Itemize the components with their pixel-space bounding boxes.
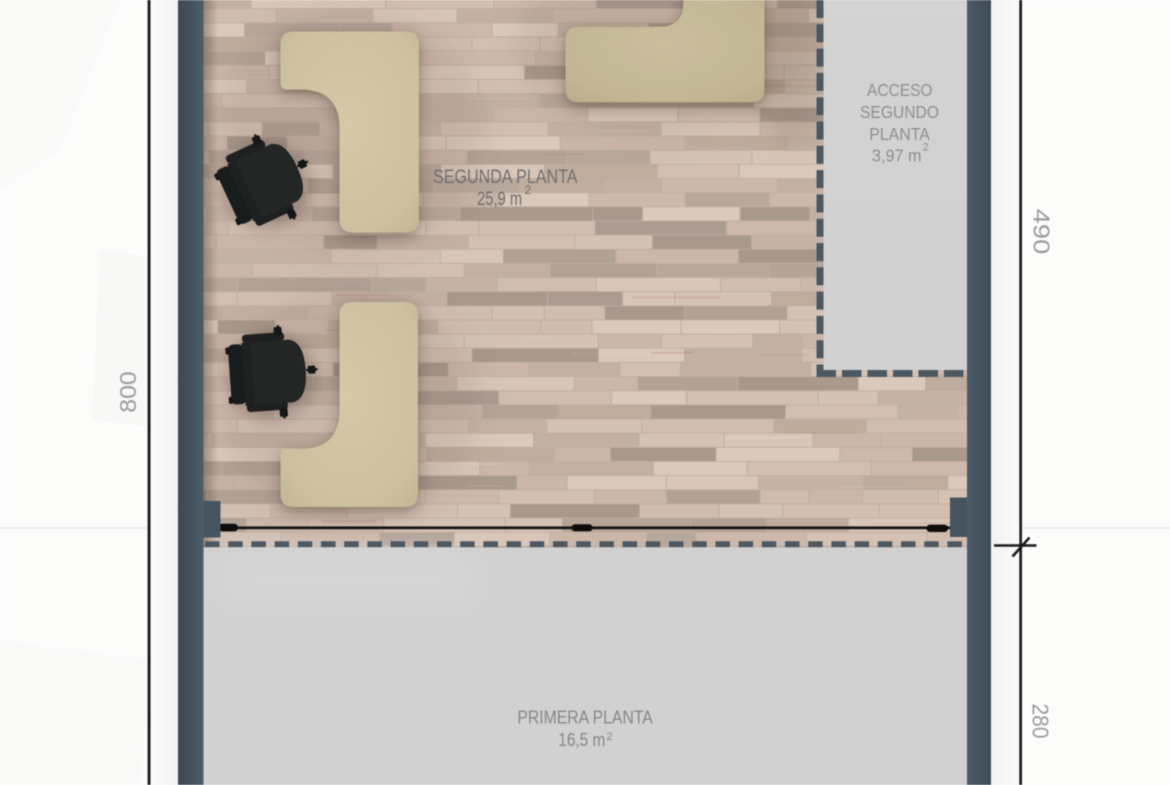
svg-text:490: 490 bbox=[1029, 209, 1055, 255]
svg-text:25,9 m: 25,9 m bbox=[477, 189, 522, 210]
svg-text:2: 2 bbox=[923, 142, 929, 154]
svg-text:ACCESO: ACCESO bbox=[867, 80, 933, 100]
svg-text:SEGUNDA PLANTA: SEGUNDA PLANTA bbox=[433, 167, 578, 188]
svg-text:2: 2 bbox=[525, 183, 532, 197]
svg-text:2: 2 bbox=[607, 731, 613, 743]
svg-text:PLANTA: PLANTA bbox=[869, 124, 930, 144]
svg-text:PRIMERA PLANTA: PRIMERA PLANTA bbox=[517, 708, 652, 728]
svg-text:3,97 m: 3,97 m bbox=[872, 146, 922, 166]
svg-text:280: 280 bbox=[1028, 704, 1054, 739]
svg-text:800: 800 bbox=[115, 371, 141, 413]
svg-text:16,5 m: 16,5 m bbox=[558, 730, 605, 750]
svg-text:SEGUNDO: SEGUNDO bbox=[860, 102, 939, 122]
